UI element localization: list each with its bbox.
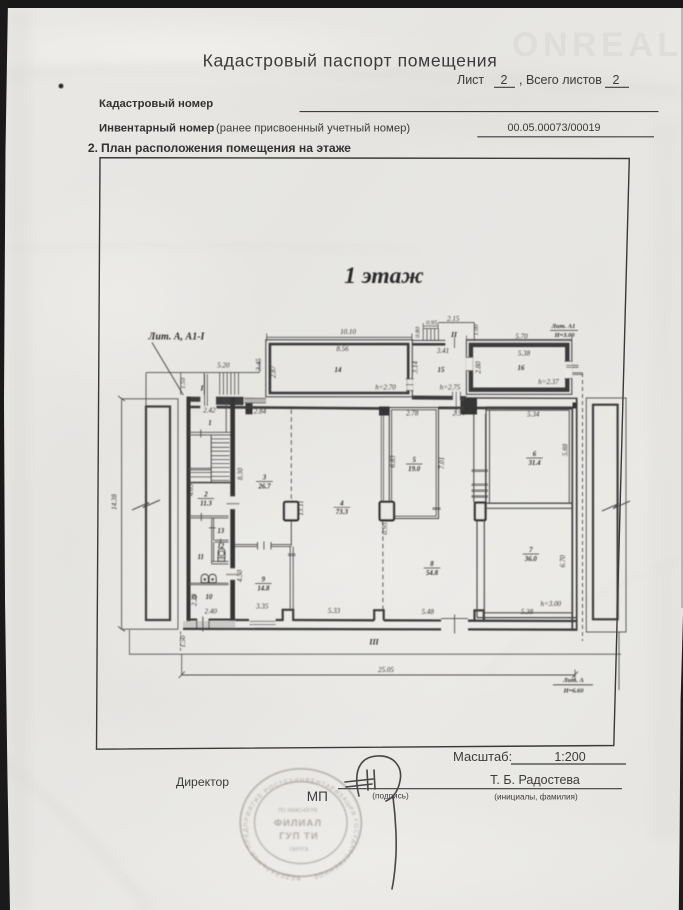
svg-text:54.8: 54.8 — [426, 570, 439, 577]
svg-text:Лит. А, А1-I: Лит. А, А1-I — [148, 332, 206, 343]
svg-text:Инвентарный номер: Инвентарный номер — [99, 123, 214, 135]
svg-text:2: 2 — [203, 492, 208, 499]
svg-text:Лит. А: Лит. А — [562, 677, 583, 684]
svg-text:15: 15 — [438, 367, 445, 374]
svg-text:7.01: 7.01 — [438, 457, 446, 469]
svg-text:ОКРУГА: ОКРУГА — [290, 847, 310, 853]
svg-text:5.34: 5.34 — [527, 410, 540, 418]
svg-text:2.40: 2.40 — [205, 608, 218, 616]
svg-text:5.38: 5.38 — [521, 608, 534, 616]
svg-text:ФИЛИАЛ: ФИЛИАЛ — [274, 818, 322, 829]
svg-text:2.84: 2.84 — [254, 408, 267, 416]
svg-text:Масштаб:: Масштаб: — [453, 749, 512, 764]
svg-text:14.8: 14.8 — [257, 585, 270, 592]
svg-text:2.42: 2.42 — [203, 407, 216, 415]
svg-text:13.11: 13.11 — [297, 500, 305, 515]
svg-text:4.65: 4.65 — [187, 483, 195, 496]
svg-text:10: 10 — [205, 594, 212, 601]
svg-text:Н=6.60: Н=6.60 — [563, 688, 585, 695]
svg-text:8: 8 — [430, 561, 434, 568]
svg-text:II: II — [450, 330, 458, 339]
svg-text:73.3: 73.3 — [336, 509, 349, 516]
svg-text:h=2.70: h=2.70 — [375, 384, 396, 392]
svg-text:Лист: Лист — [457, 73, 484, 87]
svg-text:2.78: 2.78 — [406, 410, 419, 418]
svg-text:(ранее присвоенный учетный ном: (ранее присвоенный учетный номер) — [216, 123, 410, 135]
svg-text:7: 7 — [529, 547, 533, 554]
svg-text:36.0: 36.0 — [524, 556, 538, 563]
svg-text:2.87: 2.87 — [270, 365, 278, 378]
svg-text:31.4: 31.4 — [527, 460, 541, 467]
svg-text:26.7: 26.7 — [257, 483, 271, 490]
svg-text:1.50: 1.50 — [179, 635, 187, 648]
svg-text:25.05: 25.05 — [378, 666, 394, 674]
svg-text:h=2.37: h=2.37 — [538, 378, 559, 386]
svg-text:Кадастровый номер: Кадастровый номер — [99, 98, 213, 110]
svg-text:МП: МП — [307, 789, 328, 804]
svg-text:План расположения помещения на: План расположения помещения на этаже — [101, 141, 351, 155]
svg-text:2.54: 2.54 — [453, 410, 466, 418]
svg-text:0.95: 0.95 — [381, 522, 389, 535]
svg-text:ONREAL: ONREAL — [512, 26, 683, 64]
svg-text:11: 11 — [197, 554, 204, 561]
svg-text:14.38: 14.38 — [111, 494, 119, 510]
svg-text:16: 16 — [518, 365, 525, 372]
svg-text:1: 1 — [208, 420, 211, 427]
svg-text:4.50: 4.50 — [236, 569, 244, 582]
svg-text:2: 2 — [501, 73, 508, 87]
svg-text:00.05.00073/00019: 00.05.00073/00019 — [507, 122, 600, 134]
svg-text:5.20: 5.20 — [217, 362, 230, 370]
svg-text:ПО ХМАО-ЮГРЕ: ПО ХМАО-ЮГРЕ — [278, 808, 318, 814]
svg-text:Н=3.00: Н=3.00 — [554, 332, 576, 339]
svg-text:8.56: 8.56 — [336, 345, 349, 353]
svg-text:, Всего листов: , Всего листов — [519, 73, 602, 87]
svg-text:Кадастровый паспорт помещения: Кадастровый паспорт помещения — [203, 51, 498, 71]
svg-text:6.70: 6.70 — [559, 555, 567, 568]
svg-text:2.15: 2.15 — [447, 315, 460, 323]
svg-text:h=3.00: h=3.00 — [541, 600, 562, 608]
svg-text:(инициалы, фамилия): (инициалы, фамилия) — [494, 793, 578, 802]
svg-text:5.38: 5.38 — [518, 350, 531, 358]
svg-text:2: 2 — [613, 73, 620, 87]
svg-text:3.14: 3.14 — [411, 361, 419, 375]
svg-text:10.10: 10.10 — [340, 328, 356, 336]
svg-text:Лит. А1: Лит. А1 — [551, 323, 576, 330]
svg-text:Директор: Директор — [176, 775, 229, 789]
svg-text:19.0: 19.0 — [408, 466, 421, 473]
svg-text:5.88: 5.88 — [561, 443, 569, 456]
svg-text:3.35: 3.35 — [255, 602, 269, 610]
svg-text:13: 13 — [217, 528, 224, 535]
svg-text:11.3: 11.3 — [200, 500, 212, 507]
svg-text:2.20: 2.20 — [191, 593, 199, 606]
svg-text:0.80: 0.80 — [415, 326, 422, 338]
svg-text:6.83: 6.83 — [389, 455, 397, 468]
svg-text:4: 4 — [339, 500, 344, 507]
svg-text:3: 3 — [262, 475, 267, 482]
svg-text:5: 5 — [412, 457, 416, 464]
svg-text:3.41: 3.41 — [436, 347, 449, 355]
svg-text:Т. Б. Радостева: Т. Б. Радостева — [490, 773, 580, 787]
svg-text:1.00: 1.00 — [473, 324, 480, 336]
svg-text:2.: 2. — [88, 141, 98, 155]
svg-text:ГУП ТИ: ГУП ТИ — [279, 831, 318, 842]
svg-text:9: 9 — [262, 577, 266, 584]
svg-text:5.48: 5.48 — [422, 608, 435, 616]
svg-text:6: 6 — [533, 451, 537, 458]
svg-text:14: 14 — [335, 367, 342, 374]
svg-text:1 этаж: 1 этаж — [344, 263, 423, 289]
svg-text:III: III — [368, 638, 379, 647]
svg-text:0.95: 0.95 — [426, 320, 437, 327]
svg-text:8.30: 8.30 — [236, 467, 244, 480]
svg-text:1:200: 1:200 — [554, 750, 585, 764]
svg-text:1.50: 1.50 — [180, 377, 187, 389]
svg-text:h=2.75: h=2.75 — [440, 384, 461, 392]
svg-text:5.33: 5.33 — [328, 607, 341, 615]
svg-text:2.80: 2.80 — [475, 361, 483, 374]
